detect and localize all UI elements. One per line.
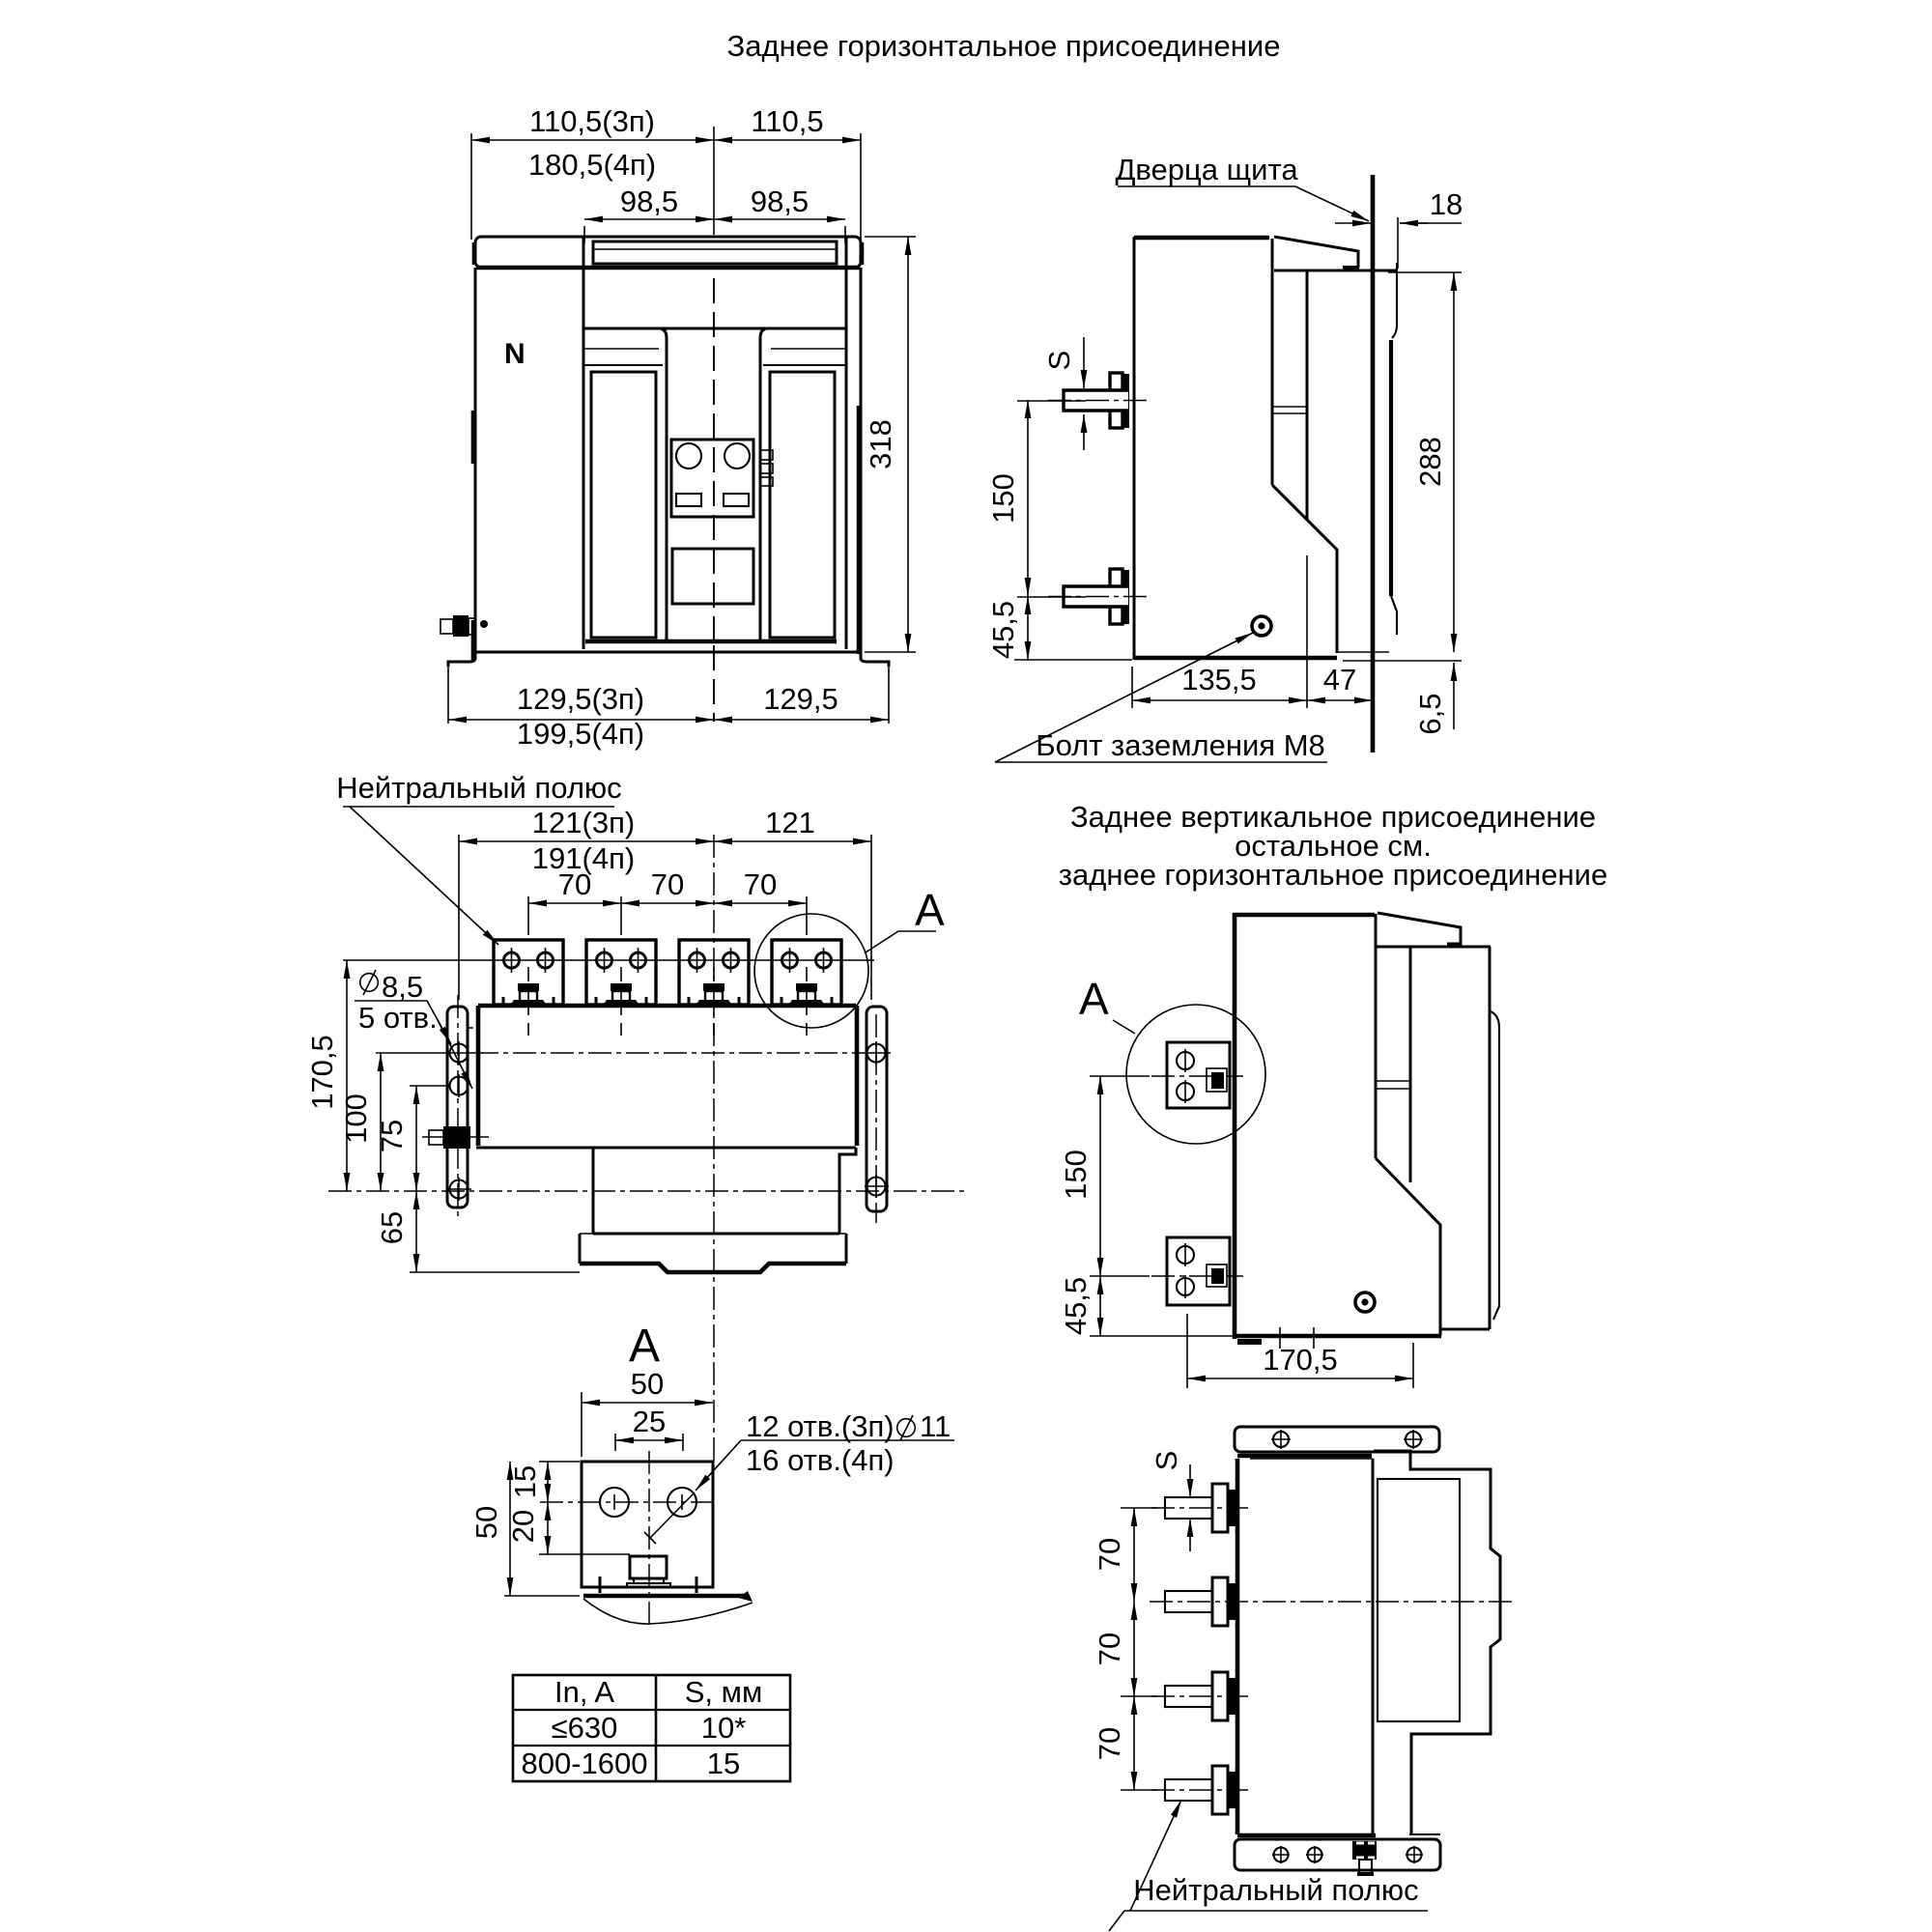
svg-text:6,5: 6,5 — [1413, 693, 1447, 734]
svg-text:N: N — [504, 338, 526, 370]
svg-text:5 отв.: 5 отв. — [358, 1001, 438, 1035]
svg-text:135,5: 135,5 — [1181, 663, 1257, 696]
svg-text:318: 318 — [864, 419, 897, 469]
svg-text:98,5: 98,5 — [751, 185, 809, 218]
svg-text:Заднее горизонтальное присоеди: Заднее горизонтальное присоединение — [727, 29, 1281, 63]
svg-text:заднее горизонтальное присоеди: заднее горизонтальное присоединение — [1059, 858, 1607, 892]
svg-text:15: 15 — [707, 1747, 740, 1780]
svg-text:150: 150 — [1059, 1150, 1093, 1200]
svg-text:20: 20 — [506, 1510, 540, 1543]
svg-text:≤630: ≤630 — [552, 1711, 618, 1745]
svg-text:S: S — [1150, 1451, 1183, 1471]
svg-text:Нейтральный полюс: Нейтральный полюс — [1133, 1873, 1418, 1907]
svg-text:180,5(4п): 180,5(4п) — [528, 148, 656, 182]
svg-text:15: 15 — [508, 1465, 542, 1498]
svg-text:70: 70 — [744, 867, 777, 901]
svg-text:S: S — [1042, 351, 1076, 371]
svg-text:In, A: In, A — [554, 1675, 614, 1709]
svg-text:10*: 10* — [701, 1711, 747, 1745]
svg-text:11: 11 — [920, 1409, 951, 1443]
svg-text:50: 50 — [631, 1367, 664, 1401]
svg-text:110,5(3п): 110,5(3п) — [529, 104, 655, 138]
svg-text:25: 25 — [633, 1405, 666, 1438]
svg-text:170,5: 170,5 — [305, 1035, 339, 1110]
svg-text:18: 18 — [1430, 187, 1463, 221]
svg-text:199,5(4п): 199,5(4п) — [517, 717, 644, 751]
svg-text:121(3п): 121(3п) — [532, 806, 635, 839]
svg-text:Дверца щита: Дверца щита — [1115, 153, 1298, 186]
svg-text:А: А — [915, 885, 945, 935]
svg-text:121: 121 — [765, 806, 815, 839]
svg-text:Нейтральный полюс: Нейтральный полюс — [336, 771, 621, 805]
svg-text:129,5: 129,5 — [763, 682, 838, 716]
svg-text:75: 75 — [375, 1120, 409, 1152]
svg-text:65: 65 — [375, 1211, 409, 1244]
svg-text:16 отв.(4п): 16 отв.(4п) — [746, 1443, 895, 1477]
svg-text:70: 70 — [558, 867, 591, 901]
svg-text:12 отв.(3п): 12 отв.(3п) — [746, 1409, 895, 1443]
svg-text:47: 47 — [1323, 663, 1356, 696]
svg-text:170,5: 170,5 — [1263, 1343, 1338, 1377]
svg-text:70: 70 — [1093, 1633, 1126, 1665]
svg-text:Болт заземления М8: Болт заземления М8 — [1036, 728, 1325, 762]
svg-text:70: 70 — [1093, 1538, 1126, 1571]
svg-text:70: 70 — [1093, 1727, 1126, 1760]
svg-text:110,5: 110,5 — [751, 104, 823, 138]
svg-text:800-1600: 800-1600 — [521, 1747, 647, 1780]
svg-text:А: А — [1079, 974, 1109, 1024]
svg-text:45,5: 45,5 — [1059, 1277, 1093, 1335]
svg-text:288: 288 — [1413, 437, 1447, 487]
svg-text:8,5: 8,5 — [382, 970, 423, 1004]
svg-text:70: 70 — [651, 867, 684, 901]
svg-text:50: 50 — [469, 1506, 503, 1539]
svg-text:98,5: 98,5 — [620, 185, 678, 218]
svg-text:100: 100 — [339, 1094, 373, 1144]
svg-text:129,5(3п): 129,5(3п) — [517, 682, 644, 716]
svg-text:45,5: 45,5 — [986, 601, 1020, 659]
svg-text:150: 150 — [986, 473, 1020, 524]
svg-text:S, мм: S, мм — [685, 1675, 763, 1709]
svg-text:А: А — [629, 1321, 660, 1372]
